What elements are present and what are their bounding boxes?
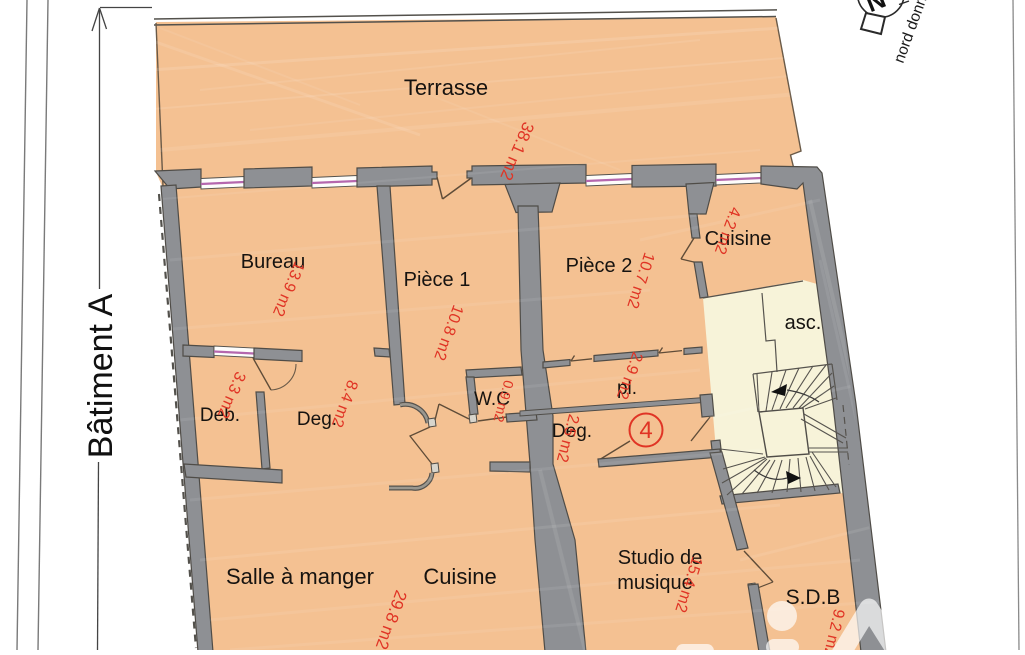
svg-text:Pièce 2: Pièce 2 [566, 255, 633, 277]
svg-text:Bâtiment A: Bâtiment A [82, 293, 120, 458]
svg-text:asc.: asc. [785, 312, 822, 334]
svg-text:Salle à manger: Salle à manger [226, 564, 374, 589]
svg-text:Cuisine: Cuisine [423, 564, 496, 589]
svg-text:Terrasse: Terrasse [404, 75, 488, 100]
svg-text:Pièce 1: Pièce 1 [404, 269, 471, 291]
svg-text:S.D.B: S.D.B [786, 586, 841, 609]
svg-text:4: 4 [639, 417, 652, 444]
